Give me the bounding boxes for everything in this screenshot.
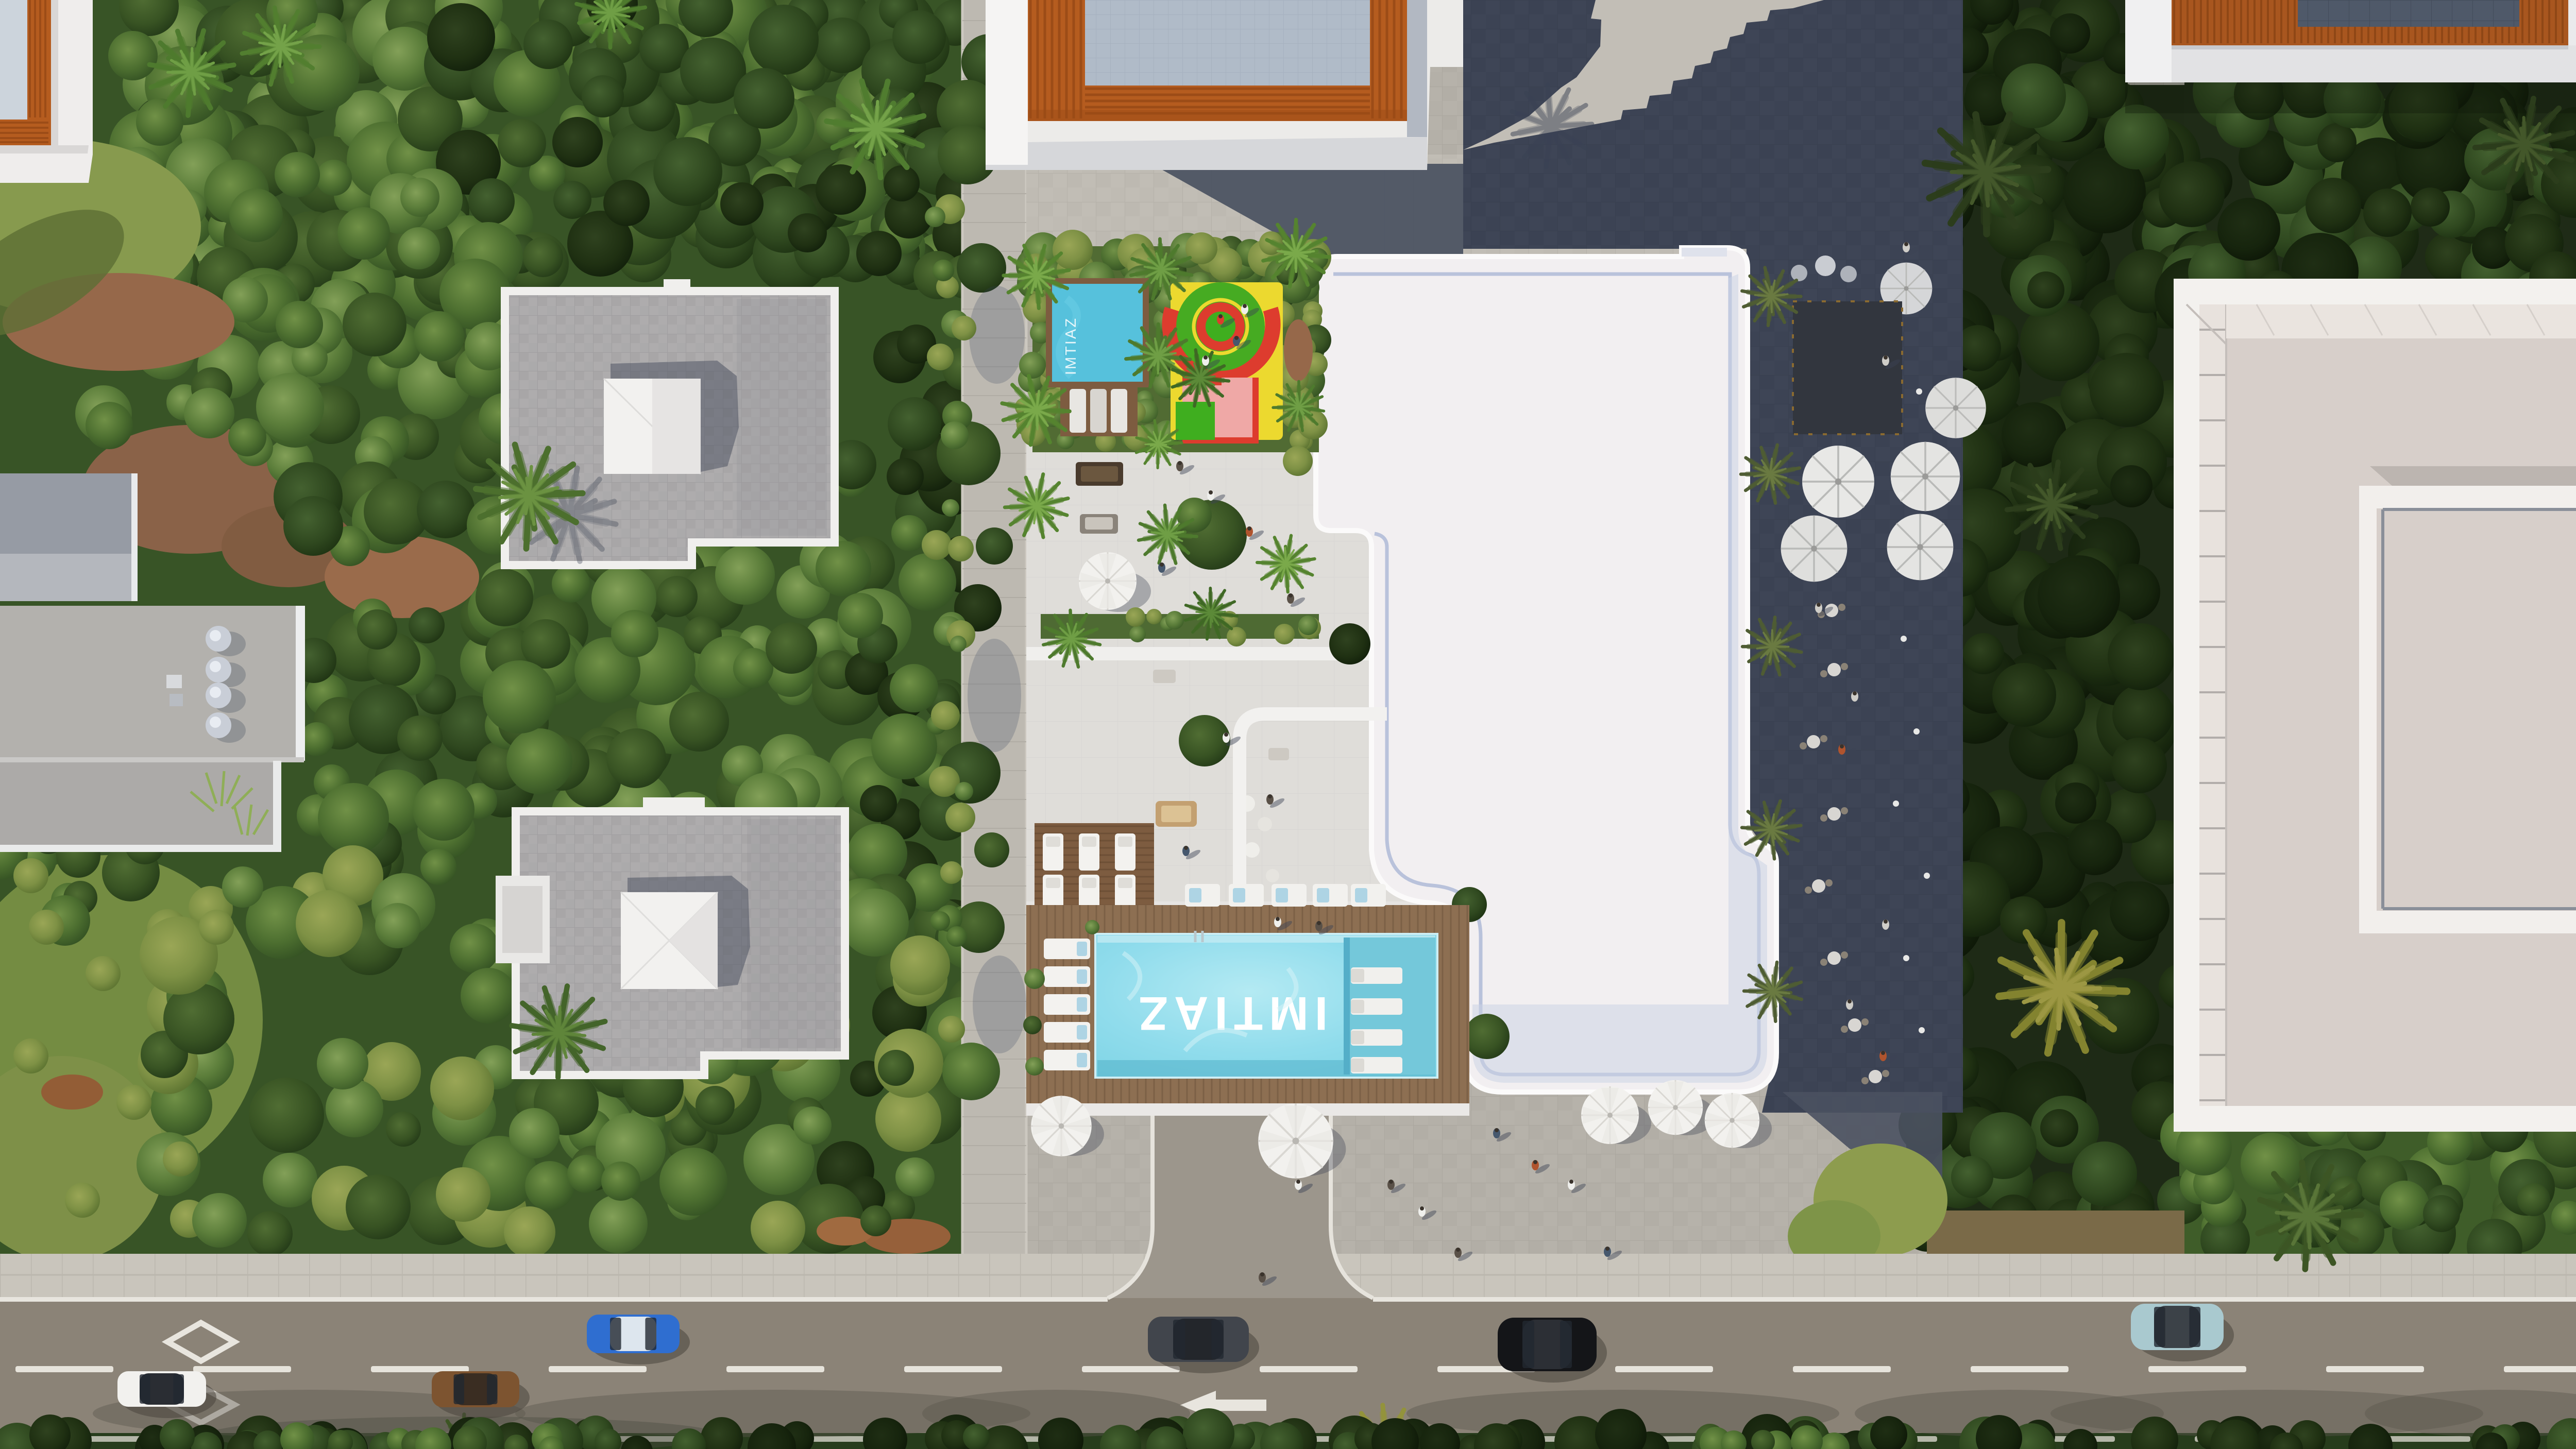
svg-text:IMTIAZ: IMTIAZ	[1063, 317, 1079, 375]
